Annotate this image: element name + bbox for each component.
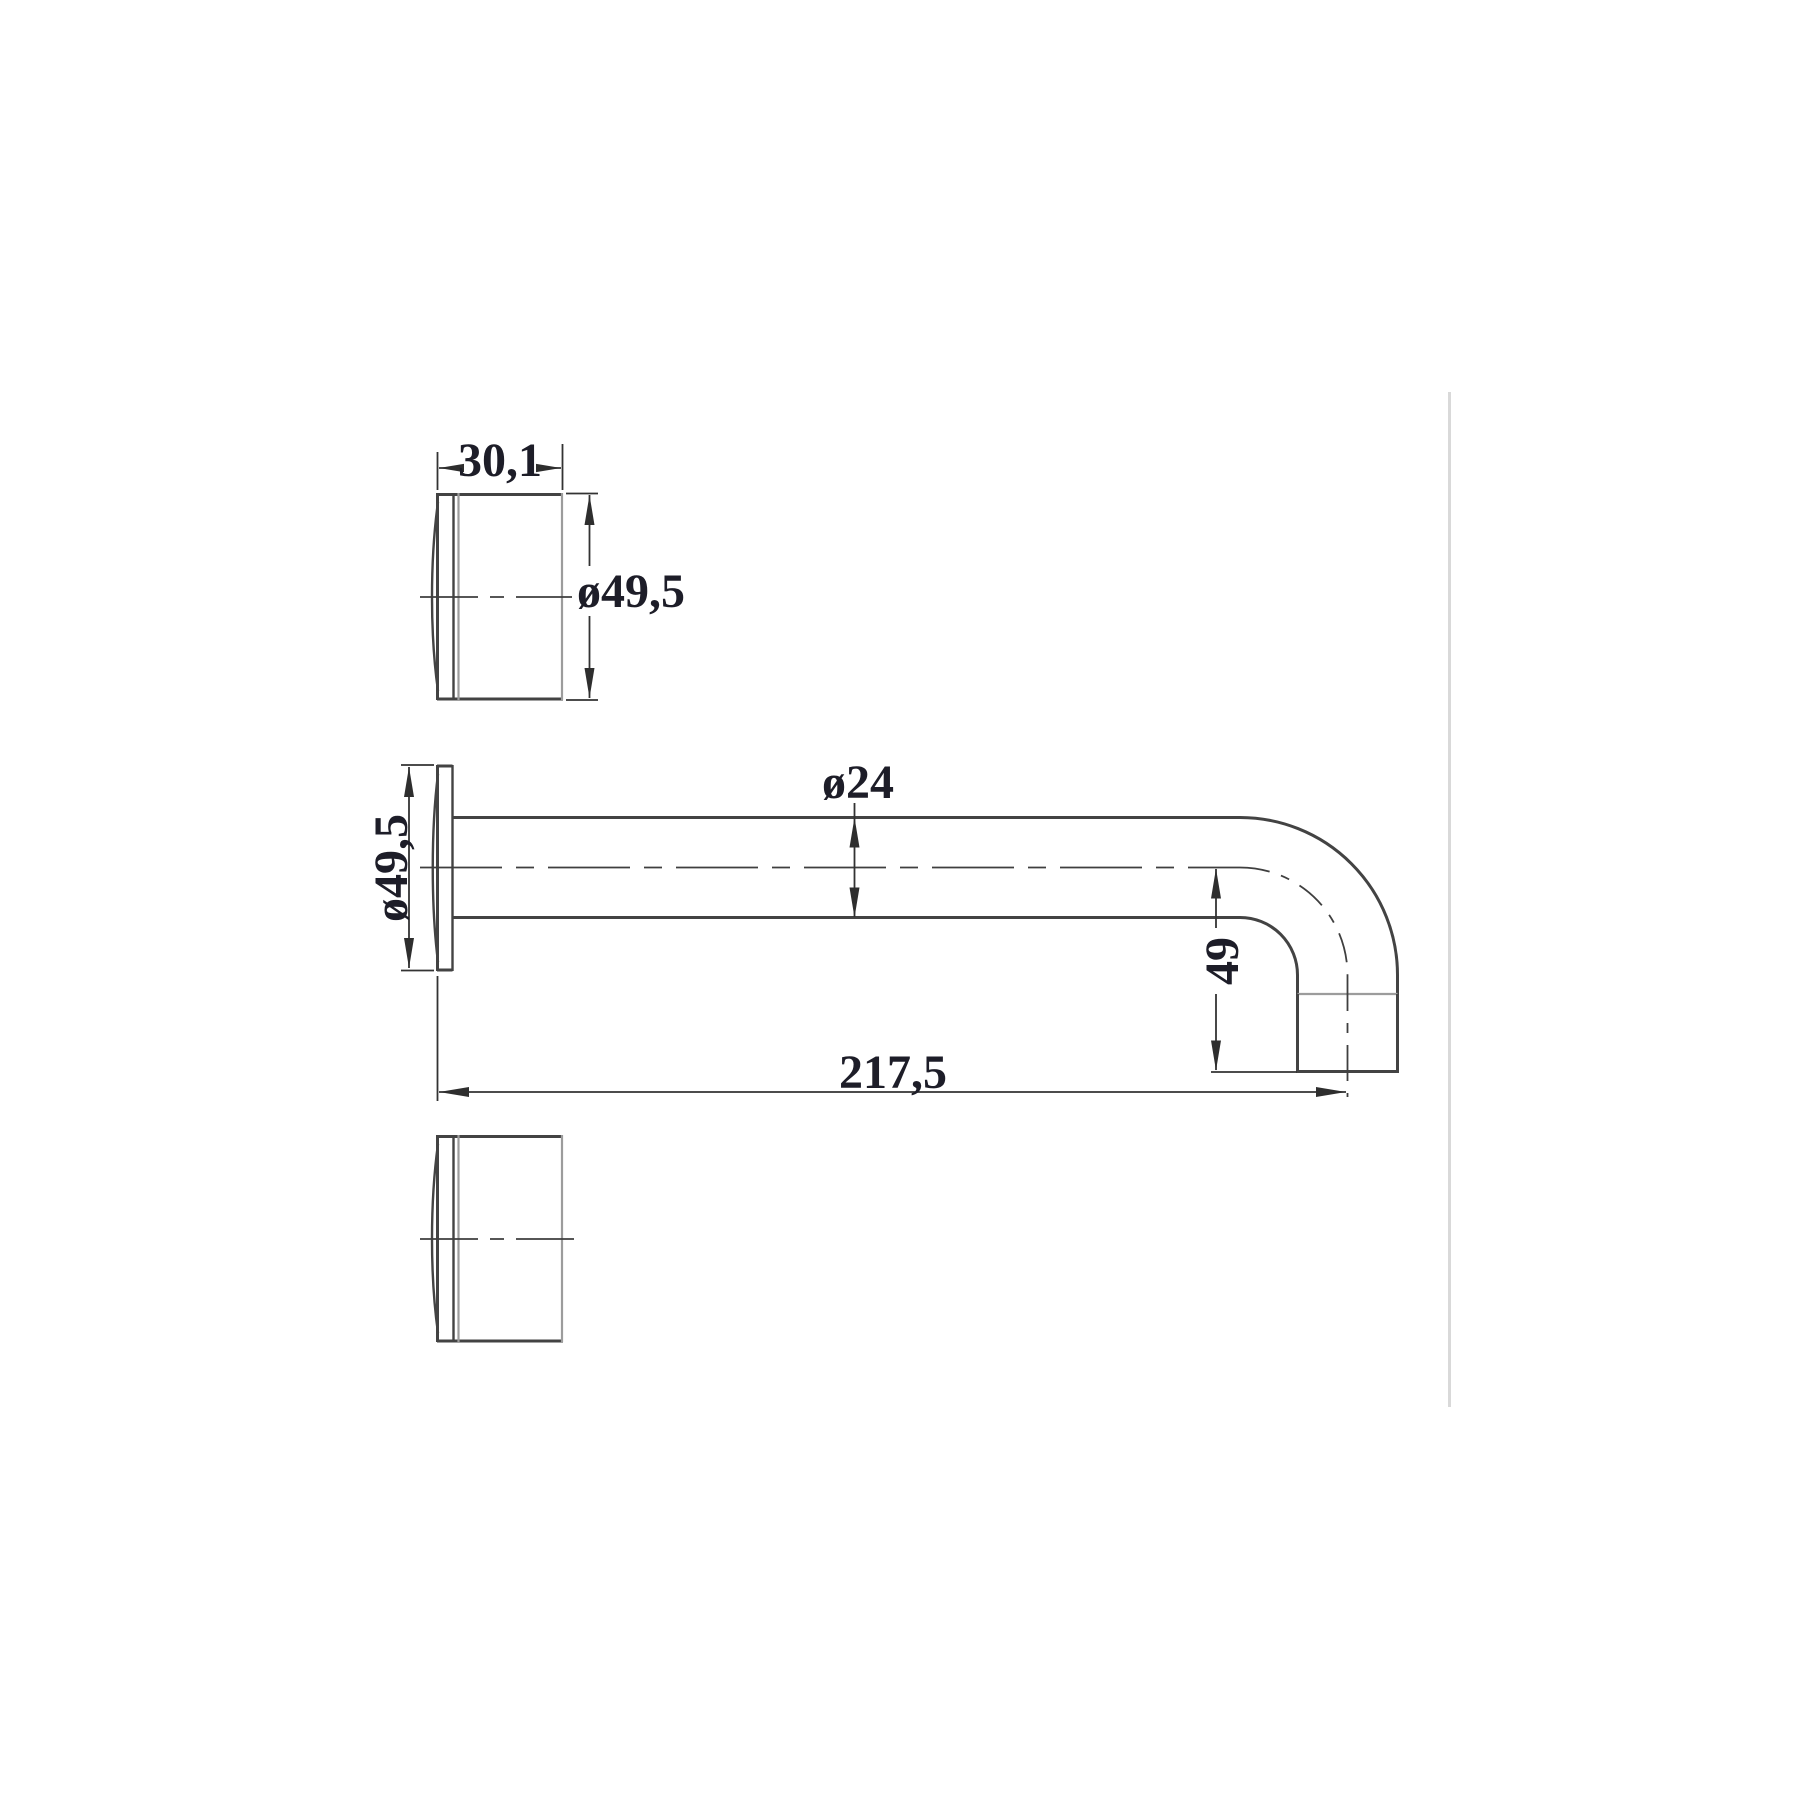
arrowhead-right (1316, 1087, 1346, 1097)
arrowhead-up (850, 818, 860, 848)
dim-label-outlet-drop: 49 (1196, 937, 1249, 985)
view-top-end (420, 493, 578, 700)
arrowhead-down (404, 938, 414, 968)
dim-outlet-drop: 49 (1196, 869, 1297, 1073)
arrowhead-up (1211, 869, 1221, 899)
arrowhead-up (404, 767, 414, 797)
arrowhead-down (850, 888, 860, 918)
dim-label-overall-length: 217,5 (839, 1046, 947, 1099)
dim-top-diameter: ø49,5 (566, 494, 690, 701)
center-line-arc (1240, 868, 1348, 976)
bend-outer-arc (1240, 818, 1398, 976)
view-bottom-end (420, 1135, 578, 1342)
dim-label-tube-diameter: ø24 (822, 756, 894, 809)
dim-overall-length: 217,5 (438, 976, 1347, 1101)
technical-drawing-canvas: 30,1 ø49,5 ø49,5 (0, 0, 1800, 1800)
dim-label-top-width: 30,1 (458, 434, 542, 487)
dim-label-flange-diameter: ø49,5 (365, 814, 418, 922)
arrowhead-down (585, 668, 595, 698)
arrowhead-left (439, 1087, 469, 1097)
dim-tube-diameter: ø24 (822, 756, 894, 918)
arrowhead-up (585, 495, 595, 525)
dim-label-top-diameter: ø49,5 (577, 565, 685, 618)
arrowhead-down (1211, 1041, 1221, 1071)
dim-top-width: 30,1 (438, 430, 563, 490)
drawing-page: 30,1 ø49,5 ø49,5 (0, 0, 1800, 1800)
